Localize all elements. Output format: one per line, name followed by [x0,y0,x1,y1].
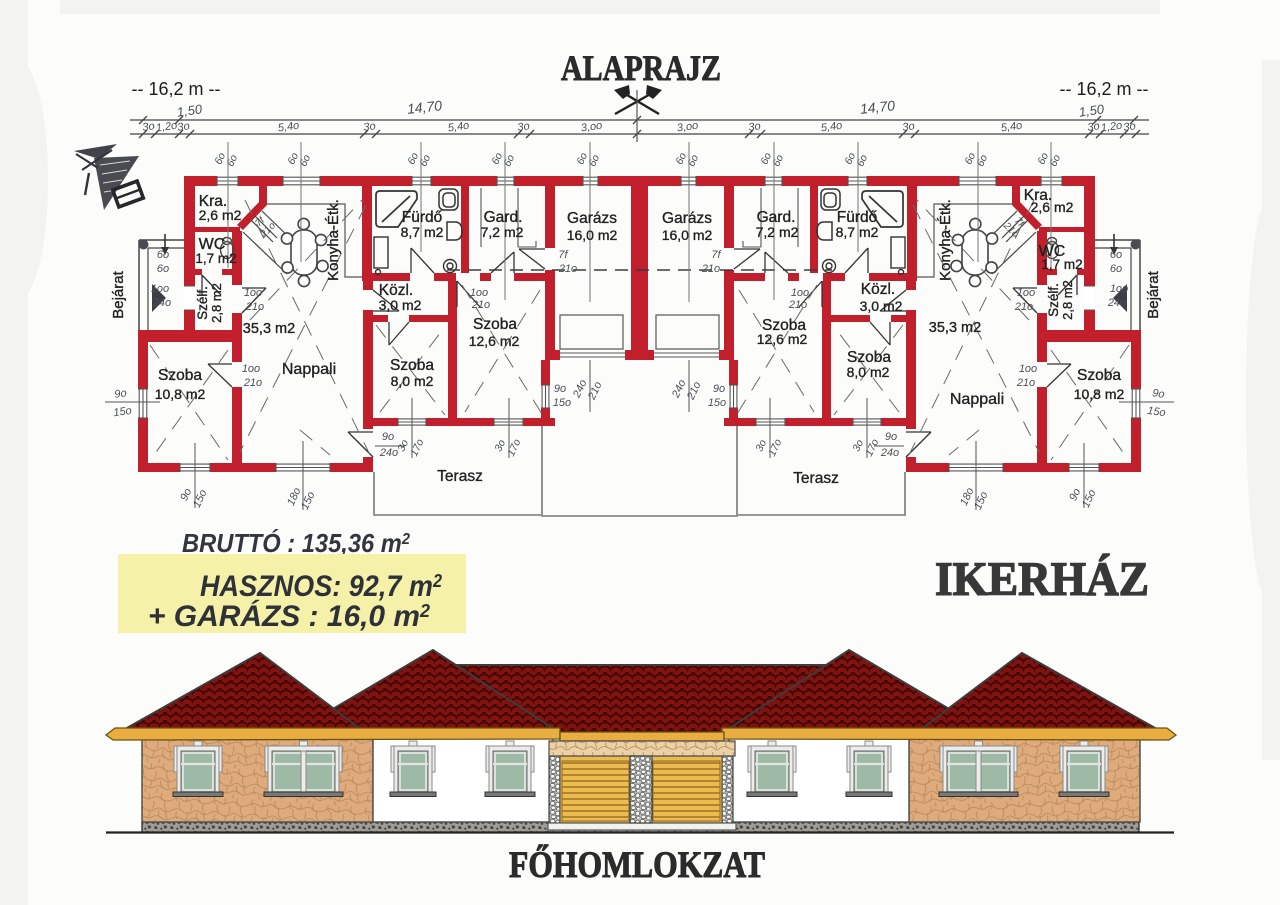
svg-text:9o: 9o [382,431,394,443]
svg-text:Terasz: Terasz [437,468,483,485]
svg-text:1oo: 1oo [470,287,488,299]
svg-text:Szoba: Szoba [390,357,434,374]
svg-text:21o: 21o [788,299,807,311]
svg-text:8,0 m2: 8,0 m2 [391,373,434,389]
svg-text:16,0 m2: 16,0 m2 [567,227,618,243]
svg-text:24o: 24o [379,447,398,459]
svg-text:2,8 m2: 2,8 m2 [1060,280,1075,320]
svg-text:-- 16,2 m --: -- 16,2 m -- [131,79,220,99]
svg-text:Szélf.: Szélf. [195,286,210,320]
svg-text:15o: 15o [1146,405,1166,419]
svg-text:15o: 15o [113,405,133,419]
svg-text:35,3 m2: 35,3 m2 [243,321,295,337]
svg-text:Szoba: Szoba [473,316,517,333]
svg-text:1,7 m2: 1,7 m2 [195,251,236,266]
svg-text:Garázs: Garázs [567,210,617,227]
svg-text:10,8 m2: 10,8 m2 [1074,386,1125,402]
svg-text:1,7 m2: 1,7 m2 [1041,257,1082,272]
svg-text:Konyha-Étk.: Konyha-Étk. [937,199,954,281]
svg-text:3,0 m2: 3,0 m2 [860,298,903,314]
svg-text:9o: 9o [885,431,897,443]
svg-text:Konyha-Étk.: Konyha-Étk. [325,199,342,281]
svg-text:1oo: 1oo [1110,283,1128,295]
svg-text:HASZNOS: 92,7 m2: HASZNOS: 92,7 m2 [200,570,442,603]
svg-text:7f: 7f [558,249,568,261]
svg-text:7,2 m2: 7,2 m2 [481,224,524,240]
svg-text:21o: 21o [1014,301,1033,313]
svg-text:Garázs: Garázs [662,210,712,227]
svg-text:21o: 21o [243,377,262,389]
svg-text:8,7 m2: 8,7 m2 [836,224,879,240]
svg-text:1oo: 1oo [1017,287,1035,299]
svg-text:1oo: 1oo [244,287,262,299]
svg-text:ALAPRAJZ: ALAPRAJZ [561,48,721,88]
svg-text:6o: 6o [157,249,169,261]
svg-text:21o: 21o [245,301,264,313]
svg-text:Nappali: Nappali [950,391,1004,408]
svg-text:7f: 7f [711,249,721,261]
svg-text:8,0 m2: 8,0 m2 [847,364,890,380]
svg-text:16,0 m2: 16,0 m2 [662,227,713,243]
svg-text:1oo: 1oo [242,363,260,375]
svg-text:-- 16,2 m --: -- 16,2 m -- [1059,79,1148,99]
svg-text:12,6 m2: 12,6 m2 [469,333,520,349]
svg-text:3,0 m2: 3,0 m2 [379,297,422,313]
svg-text:1oo: 1oo [791,287,809,299]
svg-text:35,3 m2: 35,3 m2 [929,320,981,336]
svg-text:9o: 9o [114,387,128,401]
svg-text:15o: 15o [708,397,726,409]
svg-text:Szoba: Szoba [1077,367,1121,384]
svg-text:3o: 3o [1123,120,1137,134]
svg-text:2,8 m2: 2,8 m2 [209,283,224,323]
svg-text:3o: 3o [363,120,377,134]
svg-text:6o: 6o [1110,263,1122,275]
svg-text:IKERHÁZ: IKERHÁZ [935,553,1149,606]
svg-text:21o: 21o [471,299,490,311]
svg-text:8,7 m2: 8,7 m2 [401,224,444,240]
svg-text:3o: 3o [142,120,156,134]
svg-text:6o: 6o [157,263,169,275]
svg-text:6o: 6o [1110,249,1122,261]
svg-text:7,2 m2: 7,2 m2 [756,224,799,240]
svg-text:2,6 m2: 2,6 m2 [199,207,242,223]
svg-text:9o: 9o [554,383,566,395]
svg-text:9o: 9o [1152,387,1166,401]
svg-text:24o: 24o [152,297,171,309]
svg-text:BRUTTÓ : 135,36 m2: BRUTTÓ : 135,36 m2 [182,528,410,558]
svg-text:1oo: 1oo [151,283,169,295]
svg-text:1oo: 1oo [1019,363,1037,375]
svg-text:+ GARÁZS : 16,0 m2: + GARÁZS : 16,0 m2 [148,599,430,633]
svg-text:Bejárat: Bejárat [1145,270,1162,318]
svg-text:15o: 15o [553,397,571,409]
svg-text:3o: 3o [748,120,762,134]
svg-text:Terasz: Terasz [793,470,839,487]
svg-text:3o: 3o [1087,120,1101,134]
svg-text:9o: 9o [713,383,725,395]
svg-text:Szoba: Szoba [158,367,202,384]
svg-text:21o: 21o [701,263,720,275]
svg-text:3o: 3o [517,120,531,134]
svg-text:Nappali: Nappali [282,361,336,378]
svg-text:24o: 24o [880,447,899,459]
svg-text:Közl.: Közl. [861,281,895,298]
svg-text:21o: 21o [558,263,577,275]
svg-text:Szélf.: Szélf. [1046,283,1061,317]
svg-text:Bejárat: Bejárat [110,270,127,318]
svg-text:10,8 m2: 10,8 m2 [155,386,206,402]
svg-text:24o: 24o [1107,297,1126,309]
svg-text:12,6 m2: 12,6 m2 [757,331,808,347]
svg-text:2,6 m2: 2,6 m2 [1031,199,1074,215]
svg-text:21o: 21o [1016,377,1035,389]
svg-text:FŐHOMLOKZAT: FŐHOMLOKZAT [509,843,765,886]
svg-text:3o: 3o [177,120,191,134]
svg-text:3o: 3o [902,120,916,134]
